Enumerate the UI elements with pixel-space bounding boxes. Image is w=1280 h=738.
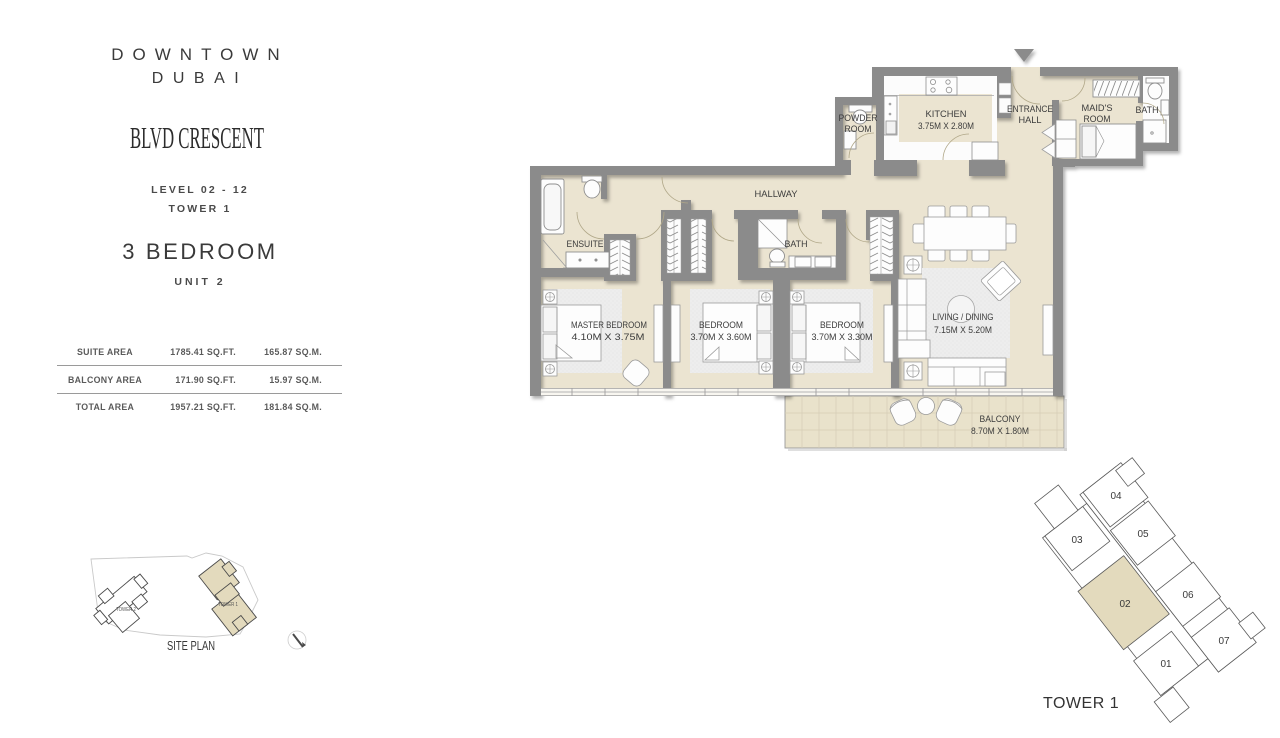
svg-text:7.15M X 5.20M: 7.15M X 5.20M (934, 325, 992, 336)
svg-text:06: 06 (1182, 590, 1194, 601)
svg-text:SITE PLAN: SITE PLAN (167, 638, 215, 653)
svg-text:05: 05 (1137, 529, 1149, 540)
svg-text:02: 02 (1119, 599, 1131, 610)
svg-text:04: 04 (1110, 491, 1122, 502)
svg-text:01: 01 (1160, 659, 1172, 670)
svg-text:ROOM: ROOM (1084, 114, 1111, 125)
svg-text:TOWER 1: TOWER 1 (1043, 695, 1119, 712)
svg-text:HALL: HALL (1019, 115, 1042, 126)
svg-text:BEDROOM: BEDROOM (820, 320, 864, 331)
svg-text:TOWER 2: TOWER 2 (116, 607, 136, 613)
svg-text:3.70M X 3.60M: 3.70M X 3.60M (691, 332, 752, 343)
svg-text:MASTER BEDROOM: MASTER BEDROOM (571, 320, 647, 331)
svg-text:BATH: BATH (1136, 105, 1159, 116)
svg-text:BALCONY: BALCONY (980, 414, 1022, 425)
svg-text:03: 03 (1071, 535, 1083, 546)
svg-text:TOWER 1: TOWER 1 (218, 602, 238, 608)
svg-text:3.70M X 3.30M: 3.70M X 3.30M (812, 332, 873, 343)
svg-text:POWDER: POWDER (839, 113, 878, 124)
svg-text:ROOM: ROOM (845, 124, 872, 135)
svg-text:BEDROOM: BEDROOM (699, 320, 743, 331)
svg-text:4.10M X 3.75M: 4.10M X 3.75M (572, 332, 645, 343)
svg-text:HALLWAY: HALLWAY (755, 189, 799, 200)
svg-text:KITCHEN: KITCHEN (926, 109, 967, 120)
svg-text:ENTRANCE: ENTRANCE (1007, 104, 1053, 115)
svg-text:07: 07 (1218, 636, 1230, 647)
svg-text:ENSUITE: ENSUITE (567, 239, 604, 250)
svg-text:3.75M X 2.80M: 3.75M X 2.80M (918, 121, 974, 132)
svg-text:MAID'S: MAID'S (1082, 103, 1113, 114)
svg-text:8.70M X 1.80M: 8.70M X 1.80M (971, 426, 1029, 437)
svg-text:BATH: BATH (785, 239, 808, 250)
svg-text:LIVING / DINING: LIVING / DINING (933, 312, 994, 323)
